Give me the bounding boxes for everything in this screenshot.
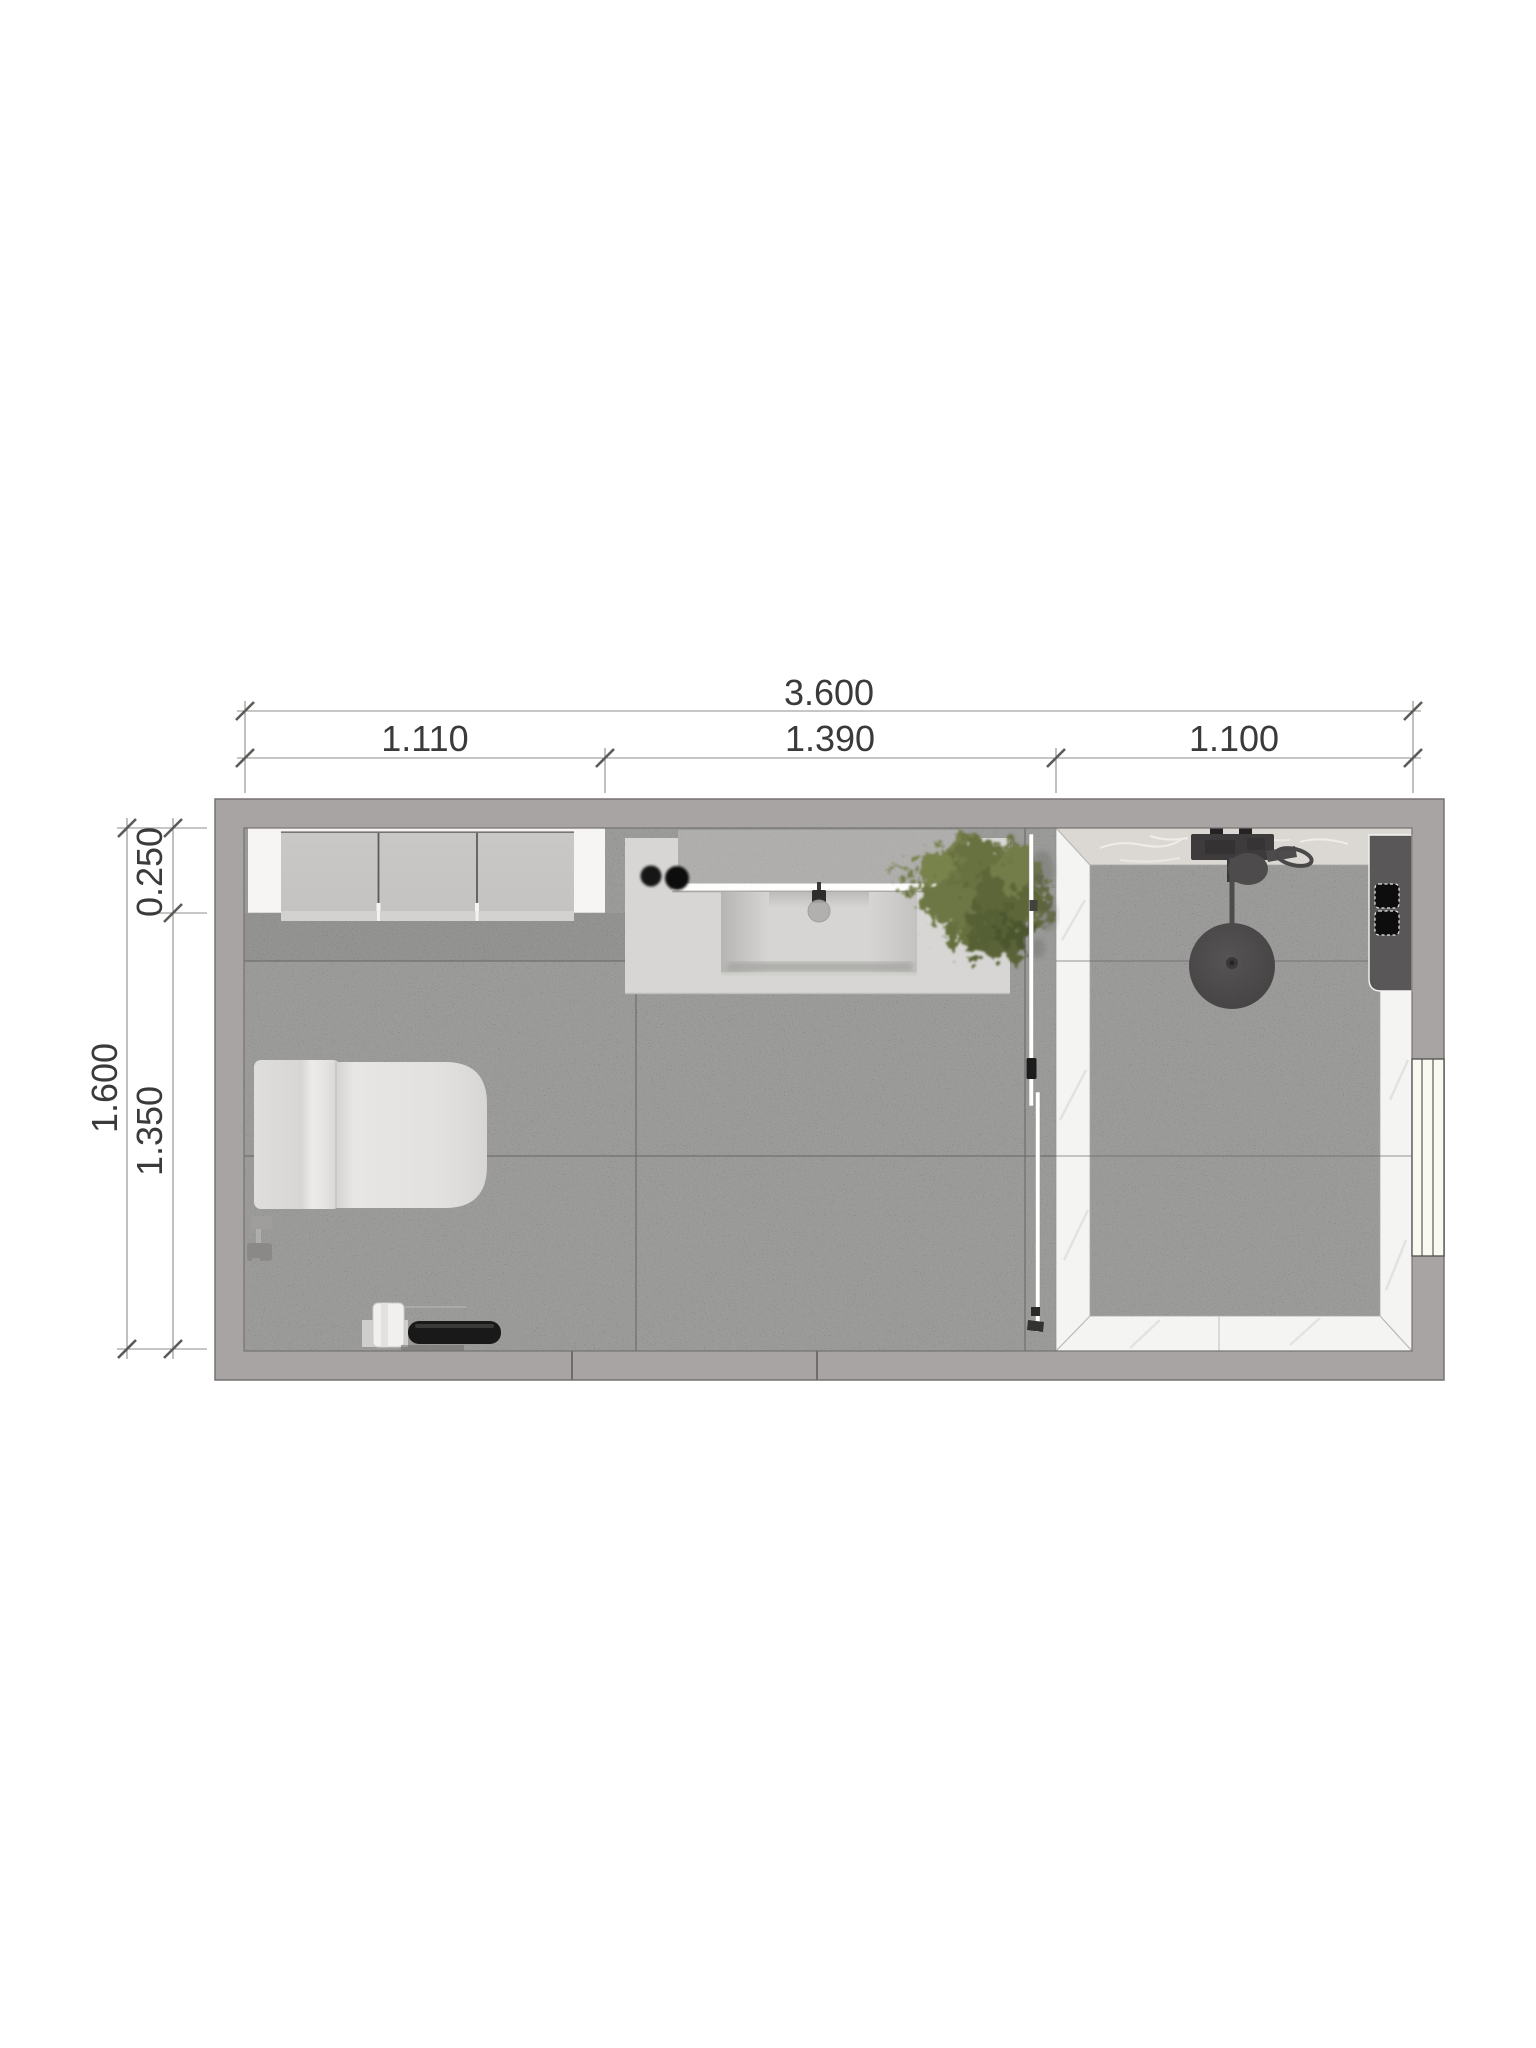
svg-text:0.250: 0.250 [129,827,170,917]
svg-text:1.100: 1.100 [1189,718,1279,759]
svg-text:1.350: 1.350 [129,1086,170,1176]
svg-text:3.600: 3.600 [784,672,874,713]
svg-text:1.390: 1.390 [785,718,875,759]
svg-text:1.110: 1.110 [381,718,468,759]
svg-text:1.600: 1.600 [84,1043,125,1133]
